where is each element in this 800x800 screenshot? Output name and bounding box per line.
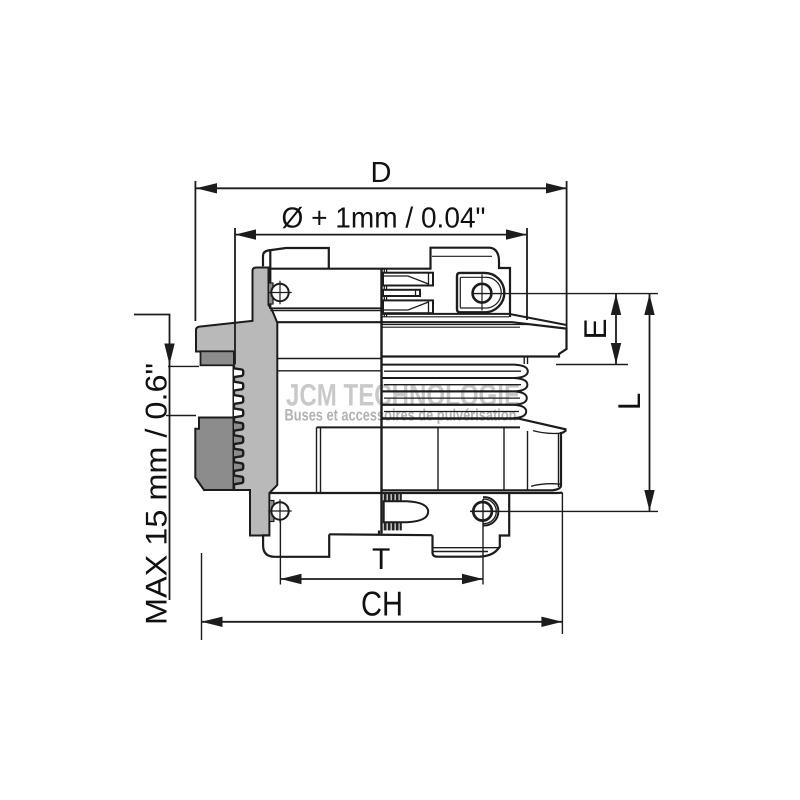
svg-text:L: L [611,393,647,411]
svg-text:Ø + 1mm / 0.04": Ø + 1mm / 0.04" [282,203,486,235]
svg-text:CH: CH [361,586,403,624]
svg-text:Buses et accessoires de pulvér: Buses et accessoires de pulvérisation [285,407,517,425]
svg-text:E: E [577,318,613,339]
svg-text:MAX 15 mm / 0.6": MAX 15 mm / 0.6" [141,363,174,625]
svg-text:D: D [371,157,392,189]
svg-text:T: T [372,543,390,576]
